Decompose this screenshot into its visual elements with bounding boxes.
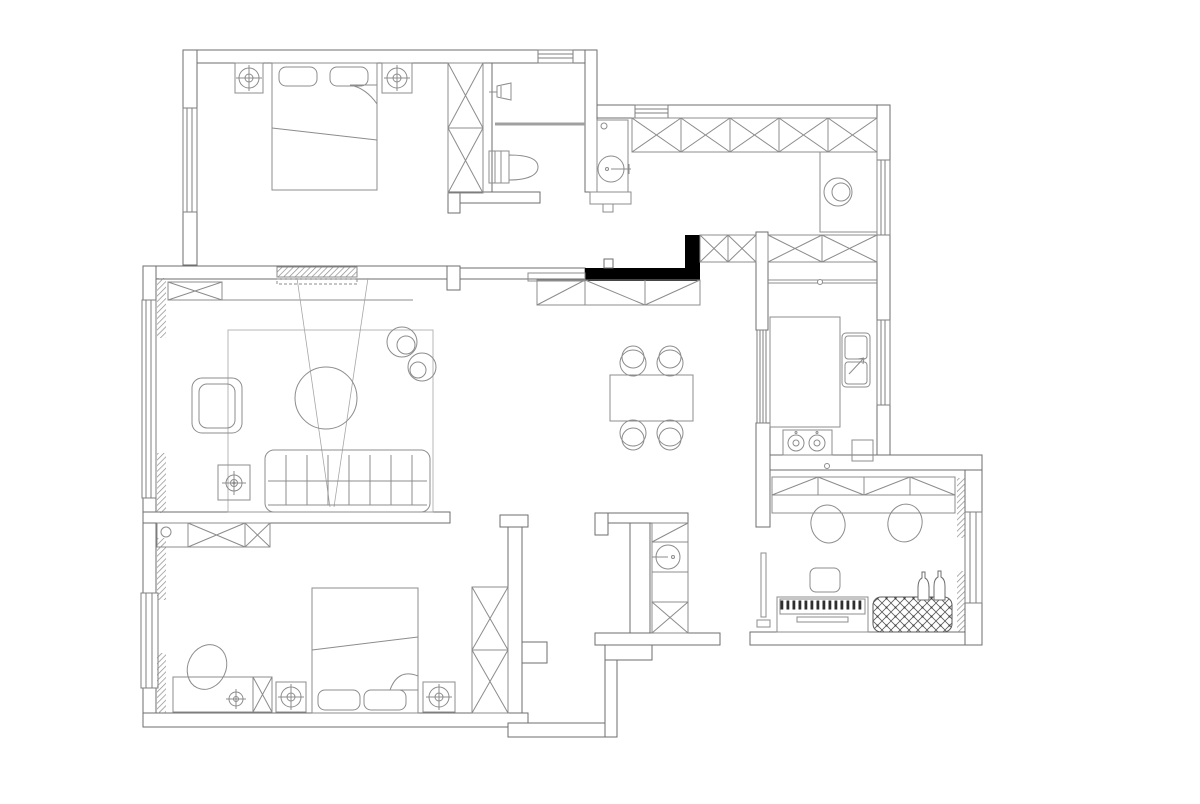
washing-machine-icon [820,152,877,232]
kitchen [768,280,877,469]
washbasin-icon [652,545,680,569]
wardrobe-icon [472,587,508,713]
chair-icon [807,502,848,546]
curtain-icon [157,278,166,338]
walls [143,50,982,737]
storage-cabinet-row [700,235,877,262]
cabinet-knob [825,464,830,469]
sofa-icon [265,450,430,512]
bed-icon [272,63,377,190]
sliding-glass-door [757,330,766,423]
bed-icon [312,588,418,713]
chair-icon [180,638,234,696]
living-room [168,267,436,512]
cabinet-icon [253,677,272,712]
master-bathroom [489,83,538,183]
dining-table-icon [610,375,693,421]
floor-plan-canvas [0,0,1200,804]
wall-segment [595,513,688,523]
curtain-icon [157,653,166,713]
tv-icon [277,267,357,284]
blanket-fold [350,85,377,104]
media-cabinet-icon [168,282,222,300]
ceiling-lamp-icon [384,65,410,91]
storage-cabinet-row [632,118,877,152]
wall-segment [605,655,617,737]
wall-segment [143,512,450,523]
floor-lamp-icon [222,471,246,495]
wall-segment [585,50,597,192]
curtain-icon [157,453,166,513]
nightstand [235,63,263,93]
pillow [279,67,317,86]
table-lamp-icon [278,684,304,710]
piano-keys [780,599,865,614]
desk-icon [173,677,253,712]
wall-segment [756,423,770,527]
nightstand [423,682,455,712]
wall-segment [522,642,547,663]
cabinet-knob [818,280,823,285]
overhead-cabinet [772,477,955,495]
wall-segment [508,723,617,737]
wall-segment [756,232,768,330]
table-lamp-icon [426,684,452,710]
wall-tv-icon [757,553,770,627]
chair-icon [657,346,683,376]
side-table-icon [218,465,250,500]
door-stop [604,259,613,268]
wardrobe-icon [448,63,483,193]
wall-segment [483,63,492,192]
plant-icon [387,327,417,357]
wall-segment [630,523,650,645]
decor-bottles-icon [918,571,945,600]
chair-icon [620,346,646,376]
study [757,477,955,632]
window [877,320,890,405]
window [183,108,197,212]
wall-segment [447,266,460,290]
wall-segment [756,455,982,470]
viewing-cone-line [334,278,368,507]
wall-segment [595,633,720,645]
wall-segment [605,645,652,660]
curtain-icon [957,571,965,632]
pillow [364,690,406,710]
armchair-icon [192,378,242,433]
toilet-icon [489,151,538,183]
window [877,160,890,235]
overhead-cabinet [157,523,270,547]
chair-icon [620,420,646,450]
wall-segment [750,632,982,645]
storage-cabinet [652,523,688,633]
windows [141,50,982,688]
faucet-icon [849,358,864,374]
plant-icon [408,353,436,381]
ceiling-lamp-icon [236,65,262,91]
sink-icon [842,333,870,387]
curtain-icon [957,478,965,538]
pillow [318,690,360,710]
pillow [330,67,368,86]
black-feature-wall [585,268,700,281]
wall-segment [143,713,528,727]
black-feature-wall [685,235,700,281]
bay-window [965,512,982,603]
chair-icon [884,500,926,545]
powder-room [652,523,688,633]
master-bedroom [235,63,483,193]
second-bedroom [157,523,508,713]
floor-plan-drawing [0,0,1200,804]
piano-icon [777,597,868,632]
utility-corridor [632,118,877,262]
blanket-fold [390,674,418,690]
chesterfield-sofa-icon [873,597,952,632]
bay-window [141,593,158,688]
coffee-table-icon [295,367,357,429]
piano-bench-icon [810,568,840,592]
bay-window [142,300,156,498]
chair-icon [657,420,683,450]
wall-segment [595,513,608,535]
wall-segment [500,515,528,527]
wall-segment [448,192,460,213]
counter-icon [770,317,840,427]
nightstand [382,63,412,93]
cooktop-icon [783,430,832,455]
desk-icon [772,495,955,513]
wall-segment [448,192,540,203]
window [538,50,573,63]
desk-lamp-icon [226,689,246,709]
wall-segment [183,50,597,63]
wall-segment [508,527,522,727]
nightstand [276,682,306,712]
viewing-cone-line [297,278,330,507]
window [635,105,668,118]
dining-area [610,346,693,450]
